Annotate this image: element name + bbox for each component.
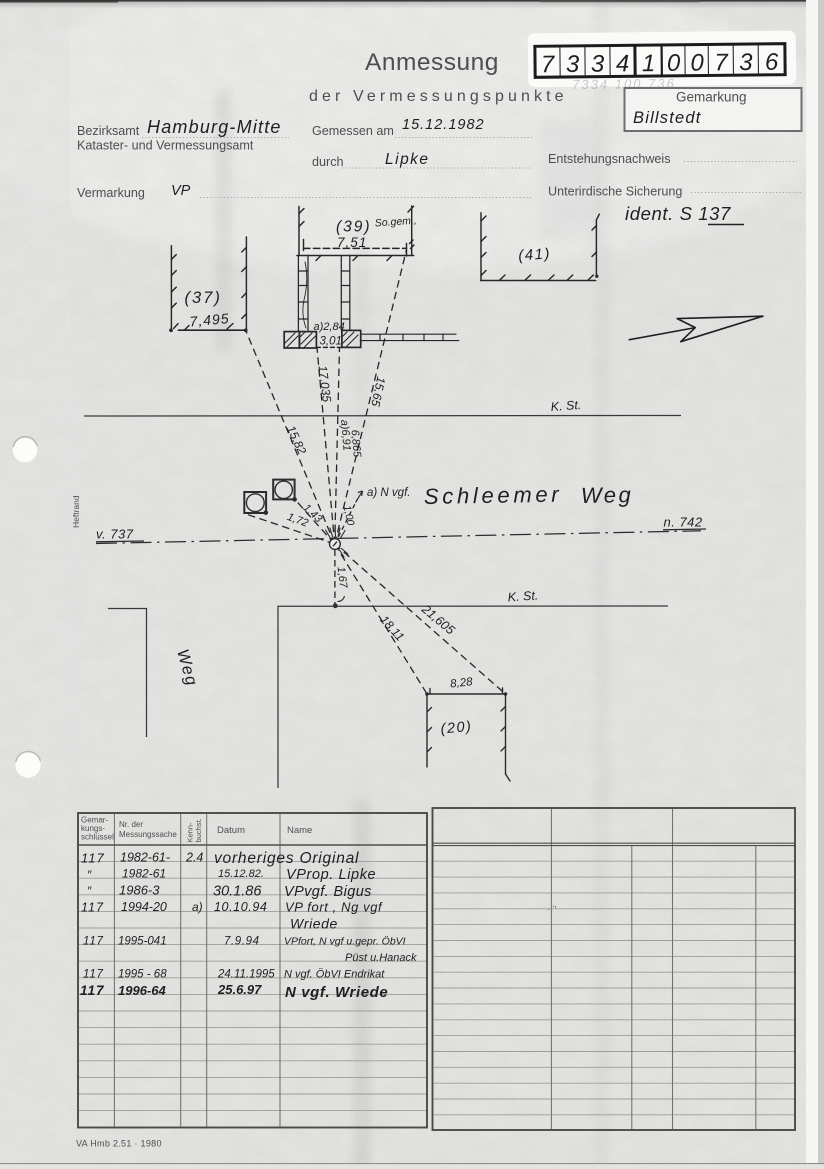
svg-text:1995-041: 1995-041 [118, 936, 167, 948]
svg-text:Datum: Datum [217, 825, 245, 836]
svg-text:6,865: 6,865 [349, 429, 363, 458]
svg-text:8,28: 8,28 [450, 676, 474, 690]
svg-text:(39): (39) [336, 219, 372, 236]
svg-text:Entstehungsnachweis: Entstehungsnachweis [548, 152, 671, 166]
svg-text:7: 7 [714, 49, 729, 76]
svg-text:Hamburg-Mitte: Hamburg-Mitte [147, 117, 282, 137]
svg-text:a): a) [192, 900, 203, 914]
svg-text:4: 4 [616, 50, 630, 77]
svg-text:1982-61: 1982-61 [122, 867, 166, 881]
svg-text:117: 117 [81, 851, 105, 866]
svg-text:durch: durch [312, 155, 344, 169]
svg-text:schlüssel: schlüssel [81, 833, 114, 842]
svg-text:vorheriges Original: vorheriges Original [214, 850, 359, 867]
svg-text:Weg: Weg [581, 482, 634, 508]
svg-text:der Vermessungspunkte: der Vermessungspunkte [309, 88, 568, 105]
svg-text:7.9.94: 7.9.94 [224, 936, 260, 948]
svg-text:Schleemer: Schleemer [424, 482, 563, 509]
svg-text:Billstedt: Billstedt [633, 109, 702, 127]
svg-text:7: 7 [541, 51, 556, 78]
svg-text:117: 117 [81, 901, 104, 915]
svg-text:117: 117 [80, 983, 105, 998]
svg-text:a)2,84: a)2,84 [314, 321, 345, 333]
svg-text:buchst.: buchst. [194, 818, 203, 842]
svg-text:VPfort, N vgf u.gepr. ÖbVI: VPfort, N vgf u.gepr. ÖbVI [284, 936, 406, 948]
svg-text:6: 6 [765, 49, 779, 76]
svg-text:117: 117 [83, 969, 104, 981]
svg-text:Gemarkung: Gemarkung [676, 90, 747, 105]
svg-text:ident. S 137: ident. S 137 [625, 203, 731, 224]
svg-text:1996-64: 1996-64 [118, 983, 166, 998]
svg-text:Name: Name [287, 825, 312, 836]
svg-text:Unterirdische Sicherung: Unterirdische Sicherung [548, 185, 682, 199]
svg-text:0: 0 [690, 50, 704, 77]
svg-text:v. 737: v. 737 [96, 527, 134, 542]
svg-text:30.1.86: 30.1.86 [213, 884, 262, 900]
svg-text:N vgf. ÖbVI Endrikat: N vgf. ÖbVI Endrikat [284, 969, 385, 981]
svg-text:10.10.94: 10.10.94 [214, 900, 267, 914]
svg-text:Püst u.Hanack: Püst u.Hanack [345, 952, 417, 964]
svg-text:(20): (20) [440, 719, 473, 738]
svg-text:Nr. der: Nr. der [119, 820, 143, 829]
svg-text:Kataster- und Vermessungsamt: Kataster- und Vermessungsamt [77, 139, 254, 153]
svg-text:1986-3: 1986-3 [119, 883, 160, 898]
svg-text:VA Hmb 2.51 · 1980: VA Hmb 2.51 · 1980 [76, 1139, 162, 1149]
svg-text:15.12.82.: 15.12.82. [218, 868, 264, 880]
svg-text:24.11.1995: 24.11.1995 [217, 969, 275, 981]
svg-text:Gemessen am: Gemessen am [312, 124, 394, 138]
svg-text:3: 3 [739, 49, 753, 76]
svg-text:Vermarkung: Vermarkung [77, 186, 145, 200]
svg-text:VPvgf. Bigus: VPvgf. Bigus [284, 884, 372, 900]
svg-text:K. St.: K. St. [550, 398, 581, 414]
svg-text:N vgf. Wriede: N vgf. Wriede [285, 984, 388, 1001]
svg-text:VP: VP [171, 183, 191, 199]
svg-text:n. 742: n. 742 [664, 515, 703, 530]
svg-text:3: 3 [591, 51, 605, 78]
svg-text:3: 3 [566, 51, 580, 78]
svg-text:(37): (37) [185, 289, 222, 307]
svg-text:(41): (41) [518, 245, 552, 264]
svg-text:VProp. Lipke: VProp. Lipke [286, 867, 376, 883]
svg-text:2.4: 2.4 [185, 851, 203, 865]
svg-text:117: 117 [83, 936, 104, 948]
svg-text:· ´′: · ´′ [547, 905, 557, 914]
svg-text:3,01: 3,01 [320, 336, 342, 348]
svg-text:Lipke: Lipke [385, 151, 430, 168]
svg-text:Anmessung: Anmessung [365, 49, 499, 76]
svg-text:7,51: 7,51 [337, 235, 367, 250]
svg-text:VP fort , Ng vgf: VP fort , Ng vgf [285, 900, 383, 915]
svg-text:0: 0 [667, 50, 681, 77]
svg-text:Heftrand: Heftrand [71, 495, 81, 528]
svg-text:Bezirksamt: Bezirksamt [77, 124, 140, 138]
svg-text:K. St.: K. St. [507, 588, 538, 604]
svg-text:25.6.97: 25.6.97 [217, 982, 262, 997]
svg-text:1995 - 68: 1995 - 68 [118, 969, 167, 981]
svg-text:a) N vgf.: a) N vgf. [367, 487, 410, 499]
svg-text:15.12.1982: 15.12.1982 [402, 117, 485, 133]
svg-text:Wriede: Wriede [290, 916, 338, 932]
svg-text:1: 1 [642, 50, 656, 77]
svg-text:Messungssache: Messungssache [119, 830, 177, 839]
svg-text:1994-20: 1994-20 [121, 900, 167, 914]
svg-text:1982-61-: 1982-61- [120, 851, 170, 865]
